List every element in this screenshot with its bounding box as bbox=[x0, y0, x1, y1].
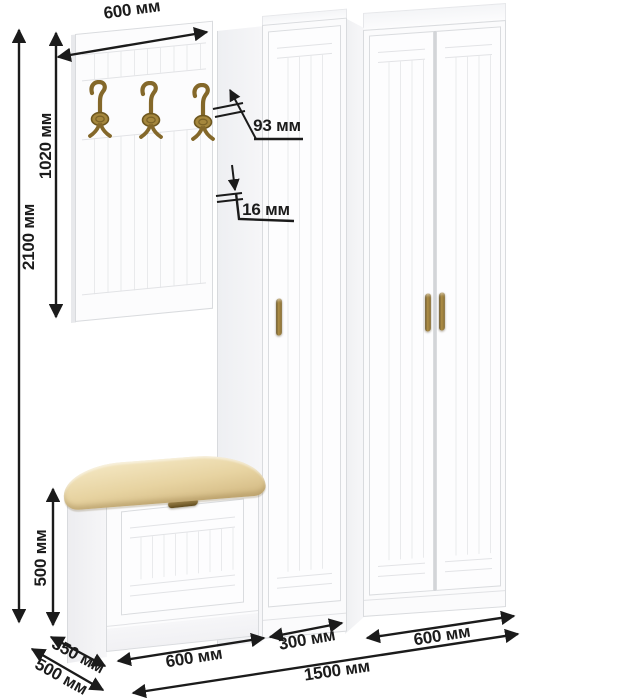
dim-label-panel-height: 1020 мм bbox=[36, 113, 56, 179]
coat-hook-icon bbox=[86, 80, 112, 140]
coat-hook-icon bbox=[137, 81, 163, 141]
right-wardrobe-right-door bbox=[436, 26, 501, 591]
right-wardrobe bbox=[363, 20, 506, 617]
dim-label-hook-projection: 93 мм bbox=[253, 116, 301, 136]
dim-label-total-width: 1500 мм bbox=[303, 656, 371, 685]
coat-hook-icon bbox=[189, 83, 215, 143]
bench-flip-door bbox=[121, 498, 244, 615]
dim-label-total-height: 2100 мм bbox=[19, 204, 39, 270]
product-dimension-diagram: 600 мм 1020 мм 2100 мм 93 мм 16 мм 500 м… bbox=[0, 0, 631, 700]
dim-label-right-width: 600 мм bbox=[412, 622, 471, 651]
dim-label-top-width: 600 мм bbox=[102, 0, 161, 24]
door-handle-icon bbox=[425, 293, 431, 331]
coat-panel bbox=[75, 21, 213, 322]
middle-wardrobe bbox=[262, 18, 347, 639]
dim-label-bench-height: 500 мм bbox=[31, 529, 51, 586]
bench-side bbox=[67, 497, 107, 663]
dim-label-panel-thickness: 16 мм bbox=[242, 200, 290, 220]
door-handle-icon bbox=[276, 298, 282, 336]
door-handle-icon bbox=[439, 292, 445, 330]
door-gap bbox=[434, 31, 436, 591]
right-wardrobe-side bbox=[345, 17, 364, 635]
dim-label-bench-width: 600 мм bbox=[164, 644, 223, 673]
